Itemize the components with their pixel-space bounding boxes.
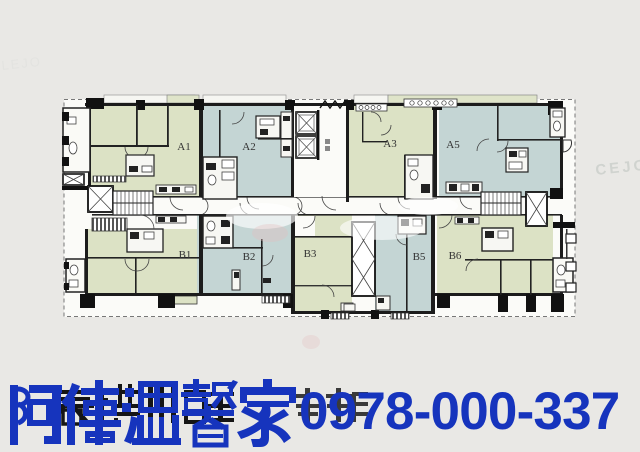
svg-text:A3: A3: [383, 138, 397, 150]
svg-text:A2: A2: [242, 141, 255, 153]
svg-text:B1: B1: [179, 249, 192, 261]
svg-text:B5: B5: [413, 251, 426, 263]
svg-text:B2: B2: [243, 251, 256, 263]
svg-text:B3: B3: [304, 248, 317, 260]
svg-text:A1: A1: [177, 141, 190, 153]
svg-text:B6: B6: [449, 250, 462, 262]
svg-text:0978-000-337: 0978-000-337: [299, 382, 619, 441]
svg-text:A5: A5: [446, 139, 460, 151]
